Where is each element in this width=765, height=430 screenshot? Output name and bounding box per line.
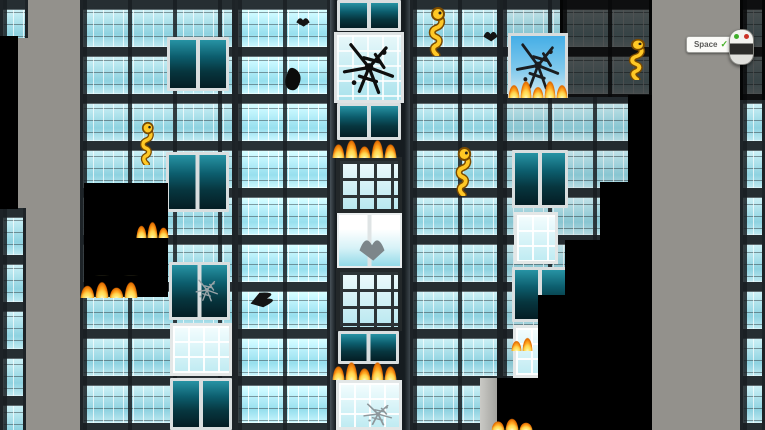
crack-decal [193,276,221,304]
dark-window-pair [170,378,232,430]
fire-flames [80,281,138,298]
game-stage[interactable]: Space ✓ [0,0,765,430]
dark-framed-grid-window [336,268,402,331]
mouse-buttons-icon[interactable] [729,29,754,65]
bird [482,27,499,43]
fire-flames [508,80,568,98]
mouse-left-button-indicator [734,34,739,39]
dark-window-pair [166,152,229,212]
building-mideast [410,0,500,430]
fire-flames [511,337,533,351]
checkmark-icon: ✓ [721,40,729,49]
burned-out-section [600,182,652,241]
space-key-label: Space [694,40,718,49]
flame-creature [136,121,158,165]
grid-window [514,212,558,264]
flame-creature [624,38,650,80]
dark-window-pair [512,150,568,208]
fire-flames [136,221,169,238]
building-left-sliver-bottom [0,208,26,430]
mouse-right-button-indicator [744,34,749,39]
burned-out-section [565,240,652,296]
bird [295,14,311,28]
grid-window [170,323,232,376]
flame-creature [451,146,476,196]
fire-flames [491,418,533,430]
building-midwest [235,0,330,430]
dark-window-pair [337,0,401,31]
shattered-window [334,32,404,103]
fire-flames [332,361,397,380]
dark-window-pair [167,37,229,91]
soot-splat [283,66,303,92]
dark-framed-grid-window [336,157,402,213]
building-left-sliver-top [0,0,28,38]
burned-out-section [538,295,652,430]
bird [357,230,387,264]
burned-out-section [628,95,652,183]
crack-decal [360,400,396,428]
flame-creature [424,6,450,56]
fire-flames [332,139,397,158]
burned-out-section [0,36,18,209]
